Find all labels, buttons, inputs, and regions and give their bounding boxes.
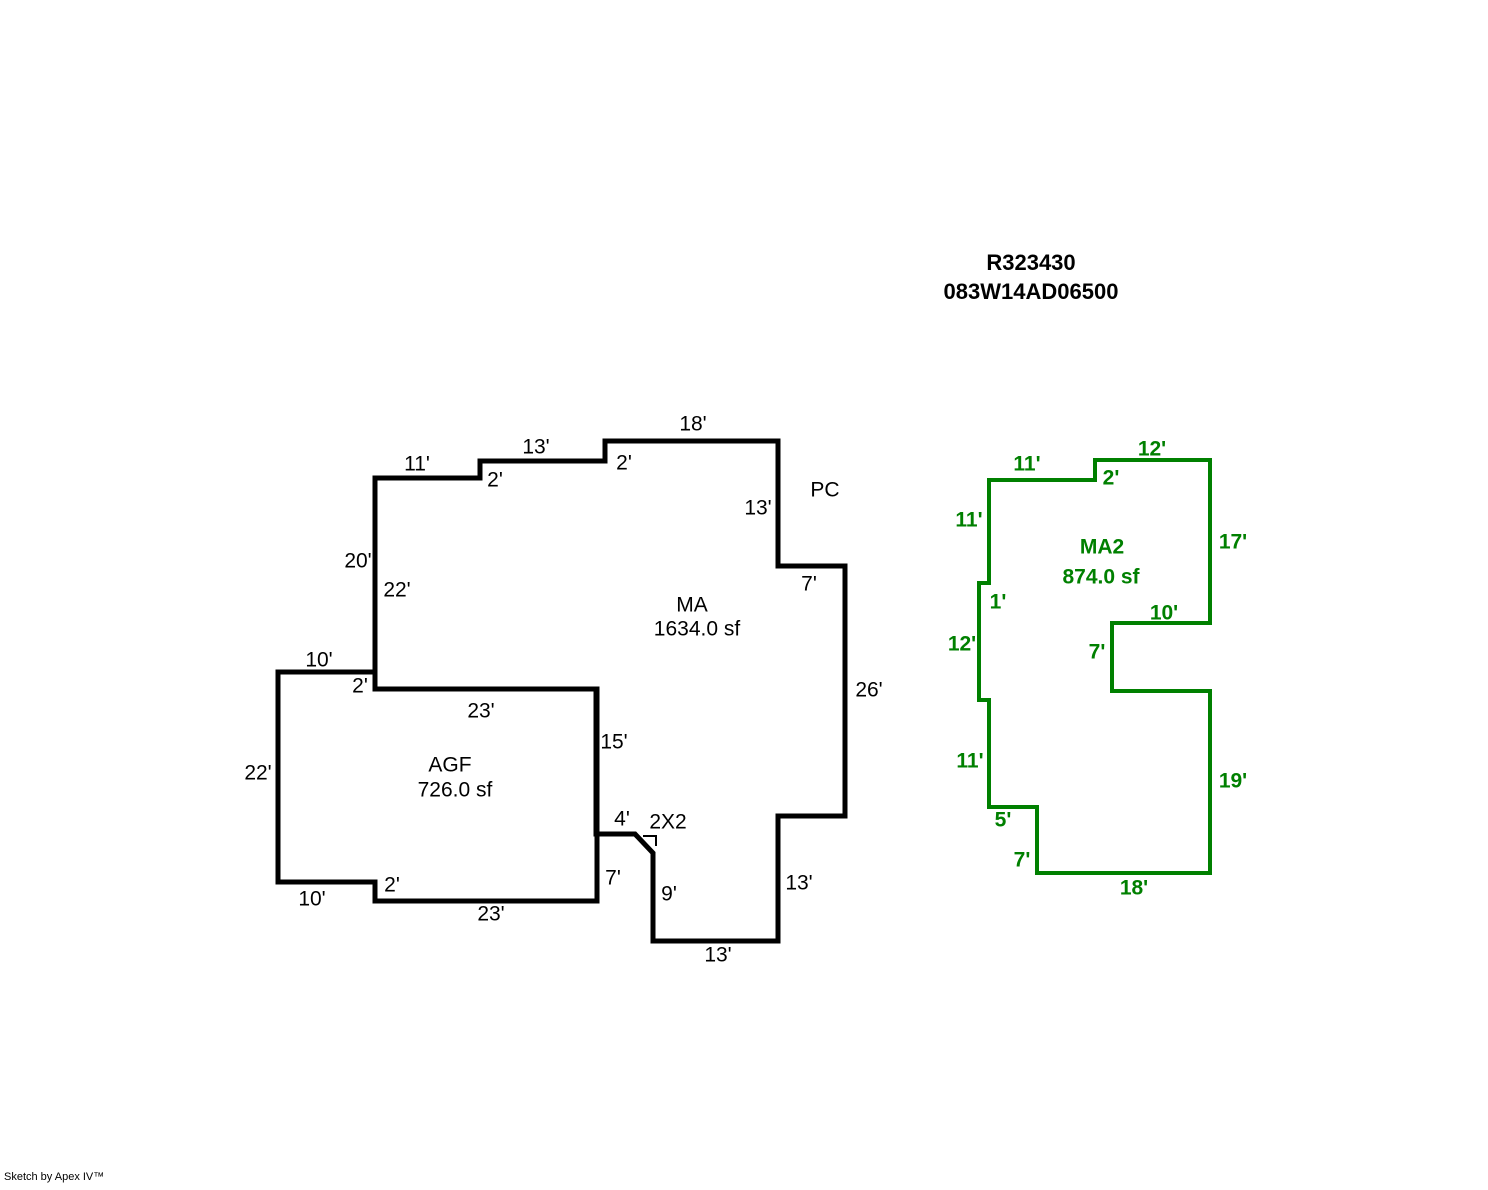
ma-outline-title: MA — [676, 594, 708, 617]
ma-outline-area: 1634.0 sf — [654, 618, 741, 641]
dimension-label: 5' — [995, 809, 1012, 832]
dimension-label: 7' — [605, 867, 621, 890]
agf-outline-title: AGF — [428, 754, 471, 777]
dimension-label: 2' — [352, 675, 368, 698]
dimension-label: 12' — [1138, 438, 1166, 461]
ma2-outline-title: MA2 — [1080, 536, 1124, 559]
dimension-label: 22' — [244, 762, 271, 785]
dimension-label: 12' — [948, 633, 976, 656]
dimension-label: 18' — [1120, 877, 1148, 900]
ma2-outline — [979, 460, 1210, 873]
dimension-label: 2' — [384, 874, 400, 897]
dimension-label: 18' — [679, 413, 706, 436]
dimension-label: 11' — [955, 509, 982, 532]
dimension-label: 1' — [990, 591, 1007, 614]
dimension-label: 7' — [1089, 641, 1106, 664]
dimension-label: 17' — [1219, 531, 1247, 554]
dimension-label: 11' — [956, 750, 983, 773]
dimension-label: 11' — [404, 453, 430, 476]
annotation-label: PC — [810, 479, 839, 502]
dimension-label: 11' — [1013, 453, 1040, 476]
dimension-label: 13' — [522, 436, 549, 459]
dimension-label: 2' — [616, 452, 632, 475]
ma2-outline-area: 874.0 sf — [1062, 566, 1140, 589]
dimension-label: 13' — [744, 497, 771, 520]
dimension-label: 22' — [383, 579, 410, 602]
agf-outline-area: 726.0 sf — [418, 779, 493, 802]
dimension-label: 26' — [855, 679, 882, 702]
dimension-label: 9' — [661, 883, 677, 906]
dimension-label: 20' — [344, 550, 371, 573]
sketch-canvas: MA1634.0 sfAGF726.0 sfMA2874.0 sf11'2'13… — [0, 0, 1488, 1190]
dimension-label: 2' — [1103, 467, 1120, 490]
dimension-label: 4' — [614, 808, 630, 831]
dimension-label: 13' — [704, 944, 731, 967]
dimension-label: 10' — [305, 649, 332, 672]
dimension-label: 23' — [467, 700, 494, 723]
dimension-label: 23' — [477, 903, 504, 926]
dimension-label: 10' — [298, 888, 325, 911]
dimension-label: 19' — [1219, 770, 1247, 793]
dimension-label: 7' — [801, 573, 817, 596]
sketch-page: R323430 083W14AD06500 MA1634.0 sfAGF726.… — [0, 0, 1488, 1190]
dimension-label: 10' — [1150, 602, 1178, 625]
dimension-label: 15' — [600, 731, 627, 754]
dimension-label: 2' — [487, 469, 503, 492]
annotation-label: 2X2 — [649, 811, 686, 834]
dimension-label: 7' — [1014, 849, 1031, 872]
apex-credit: Sketch by Apex IV™ — [4, 1171, 104, 1183]
dimension-label: 13' — [785, 872, 812, 895]
